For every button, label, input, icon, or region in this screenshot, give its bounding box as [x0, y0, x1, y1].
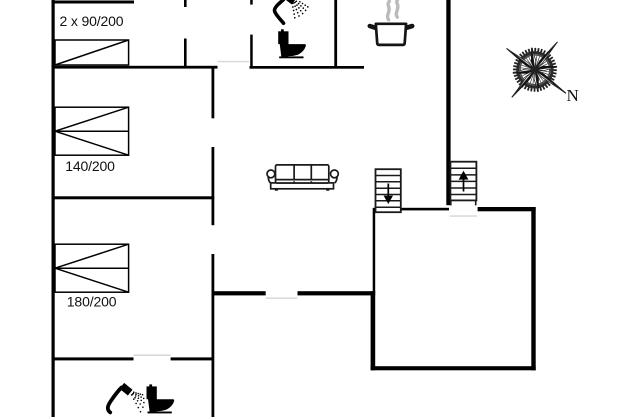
svg-text:N: N	[567, 86, 579, 105]
svg-text:2 x 90/200: 2 x 90/200	[60, 13, 124, 29]
svg-text:140/200: 140/200	[65, 158, 115, 174]
svg-text:180/200: 180/200	[67, 294, 117, 310]
